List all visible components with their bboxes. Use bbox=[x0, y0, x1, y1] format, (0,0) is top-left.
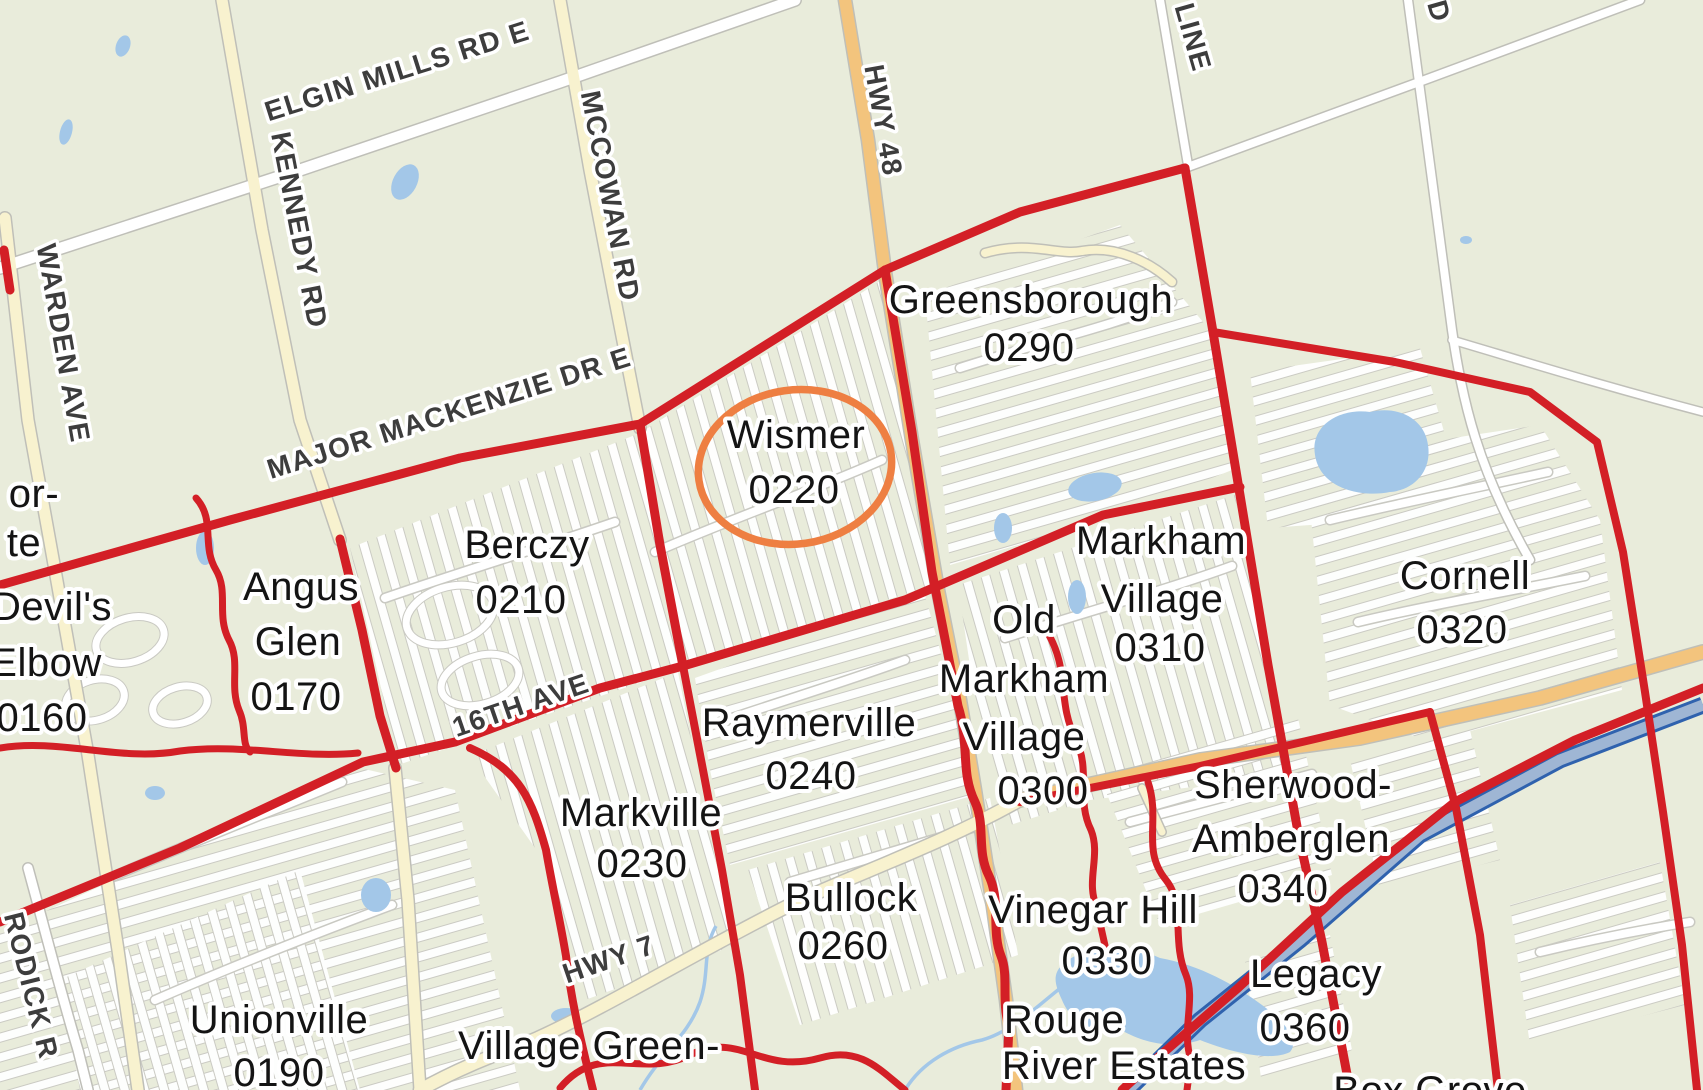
neighborhood-label-angus-glen-line1: Angus bbox=[243, 565, 359, 609]
neighborhood-label-old-markham-village-line4: 0300 bbox=[998, 769, 1089, 813]
neighborhood-label-greensborough-line1: Greensborough bbox=[889, 278, 1173, 322]
neighborhood-label-west-partial-line1: or- bbox=[9, 472, 59, 516]
neighborhood-label-cornell-line2: 0320 bbox=[1417, 608, 1508, 652]
neighborhood-label-old-markham-village-line1: Old bbox=[992, 598, 1056, 642]
neighborhood-label-markham-village-line2: Village bbox=[1101, 577, 1224, 621]
neighborhood-label-raymerville-line2: 0240 bbox=[766, 754, 857, 798]
pond bbox=[1460, 236, 1472, 244]
neighborhood-label-vinegar-hill-line2: 0330 bbox=[1062, 939, 1153, 983]
pond bbox=[994, 513, 1012, 543]
neighborhood-label-devils-elbow-line3: 0160 bbox=[0, 696, 87, 740]
neighborhood-label-rouge-river-estates-line1: Rouge bbox=[1004, 998, 1124, 1042]
neighborhood-label-raymerville-line1: Raymerville bbox=[702, 701, 916, 745]
neighborhood-label-old-markham-village-line2: Markham bbox=[939, 657, 1109, 701]
neighborhood-label-markham-village-line3: 0310 bbox=[1115, 626, 1206, 670]
neighborhood-label-old-markham-village-line3: Village bbox=[963, 715, 1086, 759]
boundary-left-edge-stub bbox=[4, 250, 10, 290]
greensborough-pond bbox=[1314, 410, 1428, 493]
pond bbox=[145, 786, 165, 800]
neighborhood-label-west-partial-line2: te bbox=[7, 521, 41, 565]
neighborhood-label-vinegar-hill-line1: Vinegar Hill bbox=[988, 888, 1198, 932]
neighborhood-label-box-grove-partial: Box Grove bbox=[1333, 1069, 1526, 1090]
map-stage: ELGIN MILLS RD EMCCOWAN RDHWY 48KENNEDY … bbox=[0, 0, 1703, 1090]
neighborhood-label-legacy-line1: Legacy bbox=[1250, 952, 1382, 996]
neighborhood-label-sherwood-amberglen-line3: 0340 bbox=[1238, 867, 1329, 911]
markham-neighbourhood-map: ELGIN MILLS RD EMCCOWAN RDHWY 48KENNEDY … bbox=[0, 0, 1703, 1090]
neighborhood-label-devils-elbow-line2: Elbow bbox=[0, 641, 102, 685]
neighborhood-label-unionville-line1: Unionville bbox=[190, 998, 368, 1042]
neighborhood-label-greensborough-line2: 0290 bbox=[984, 326, 1075, 370]
neighborhood-label-village-green: Village Green- bbox=[458, 1024, 720, 1068]
neighborhood-label-berczy-line1: Berczy bbox=[464, 523, 589, 567]
neighborhood-label-sherwood-amberglen-line2: Amberglen bbox=[1192, 817, 1390, 861]
neighborhood-label-legacy-line2: 0360 bbox=[1260, 1006, 1351, 1050]
pond bbox=[1068, 580, 1086, 614]
neighborhood-label-wismer-line2: 0220 bbox=[749, 468, 840, 512]
neighborhood-label-cornell-line1: Cornell bbox=[1400, 554, 1530, 598]
neighborhood-label-angus-glen-line2: Glen bbox=[255, 620, 342, 664]
neighborhood-label-berczy-line2: 0210 bbox=[476, 578, 567, 622]
neighborhood-label-devils-elbow-line1: Devil's bbox=[0, 585, 112, 629]
neighborhood-label-angus-glen-line3: 0170 bbox=[251, 675, 342, 719]
pond bbox=[361, 878, 391, 912]
neighborhood-label-markville-line1: Markville bbox=[560, 791, 722, 835]
neighborhood-label-wismer-line1: Wismer bbox=[727, 413, 866, 457]
neighborhood-label-rouge-river-estates-line2: River Estates bbox=[1002, 1044, 1246, 1088]
neighborhood-label-unionville-line2: 0190 bbox=[234, 1051, 325, 1090]
neighborhood-label-sherwood-amberglen-line1: Sherwood- bbox=[1194, 763, 1392, 807]
neighborhood-label-markville-line2: 0230 bbox=[597, 842, 688, 886]
neighborhood-label-markham-village-line1: Markham bbox=[1076, 519, 1246, 563]
neighborhood-label-bullock-line1: Bullock bbox=[785, 876, 918, 920]
neighborhood-label-bullock-line2: 0260 bbox=[798, 924, 889, 968]
